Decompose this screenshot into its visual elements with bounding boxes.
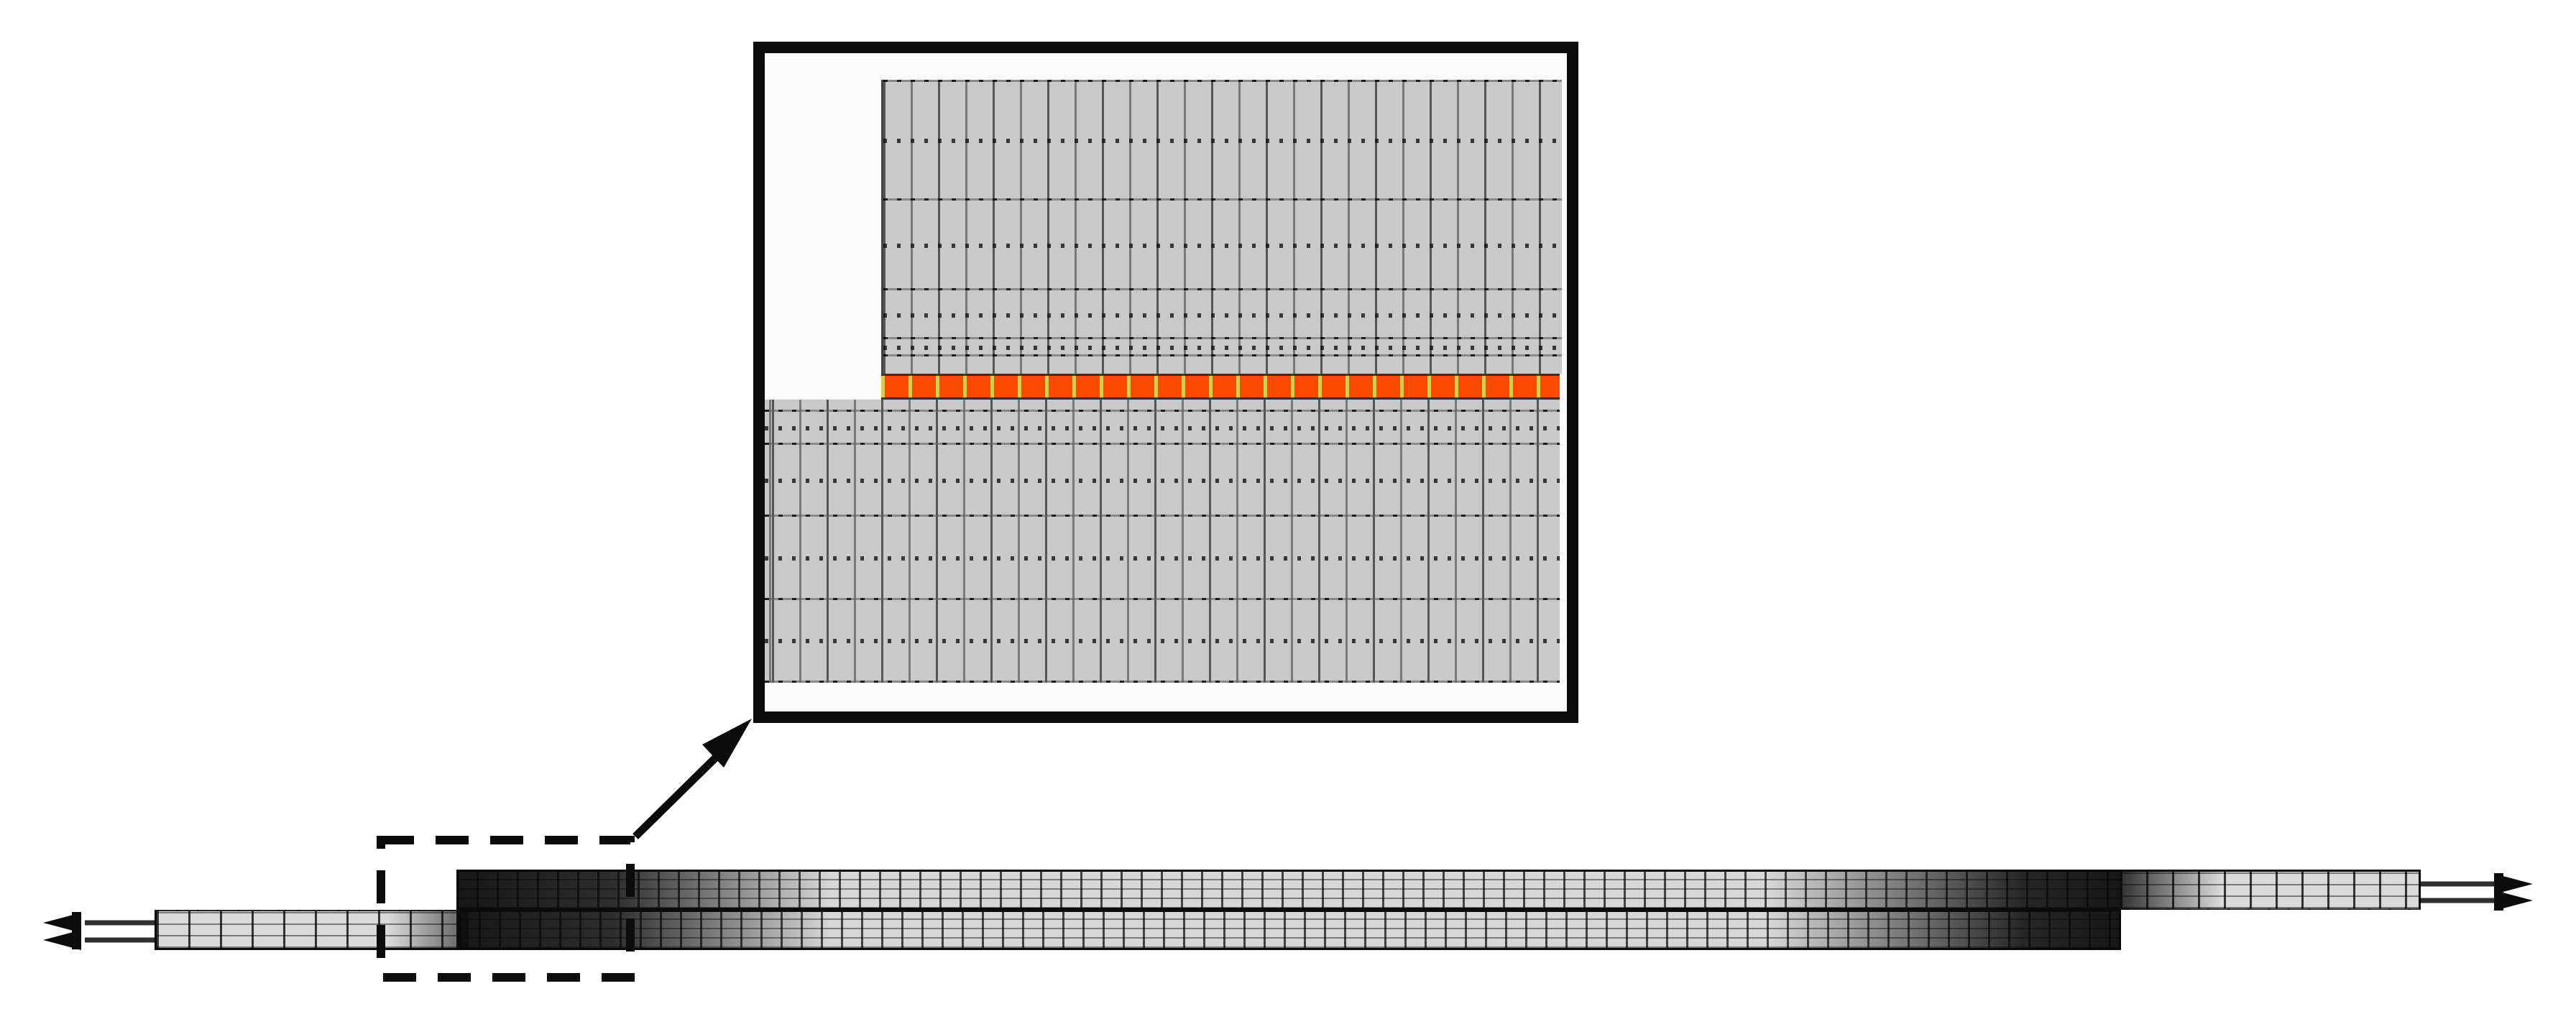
right-load-arrow-head-1-icon — [2495, 874, 2533, 894]
figure-canvas — [0, 0, 2576, 1032]
left-load-arrow-head-2-icon — [43, 930, 81, 950]
annotation-overlay — [0, 0, 2576, 1032]
callout-dashed-rectangle — [381, 840, 630, 977]
right-load-arrow-head-2-icon — [2495, 890, 2533, 911]
zoom-arrow-line — [635, 753, 720, 837]
left-load-arrow-head-1-icon — [43, 913, 81, 933]
